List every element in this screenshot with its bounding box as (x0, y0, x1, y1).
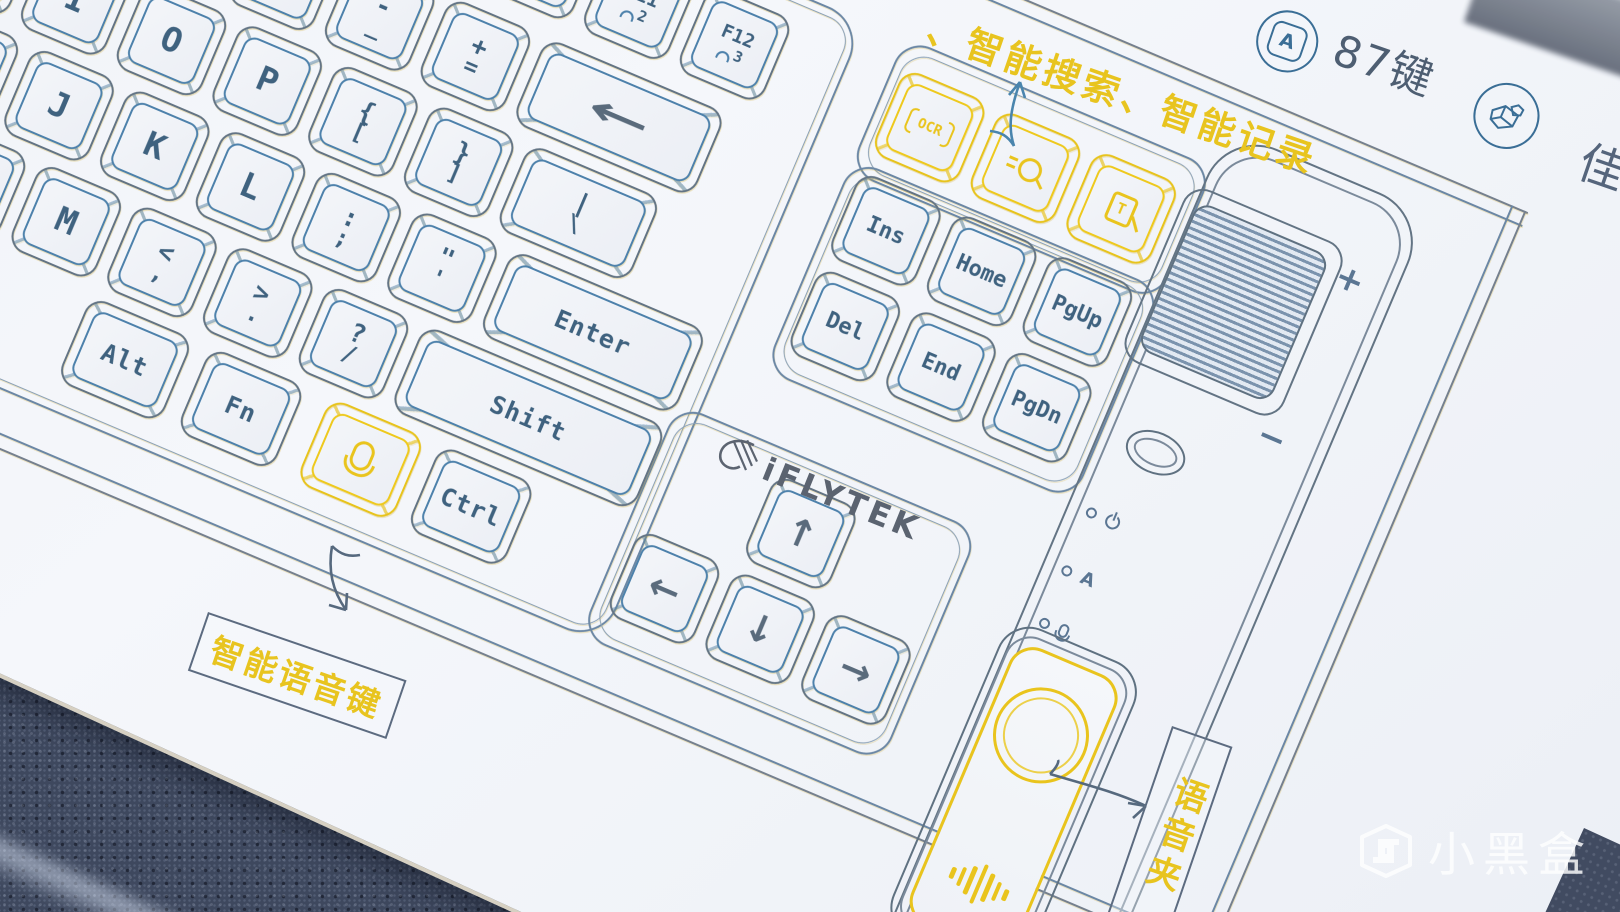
up-arrow-annotation-icon (988, 50, 1048, 150)
watermark-text: 小黑盒 (1428, 816, 1593, 885)
watermark: 小黑盒 (1358, 816, 1593, 885)
heybox-logo-icon (1358, 823, 1414, 879)
led-dot (1084, 506, 1098, 520)
note-icon: T (1103, 189, 1140, 228)
badge-a-letter: A (1264, 19, 1310, 65)
ocr-icon: OCR (903, 106, 957, 148)
mic-icon (346, 438, 378, 474)
keycap-icon (1483, 94, 1530, 139)
led-dot (1060, 564, 1074, 578)
photo-stage: 1F112F123-_+=←UIOP{[}]|\HJKL:;"'EnterNM<… (0, 0, 1620, 912)
search-icon (1014, 154, 1045, 185)
down-arrow-annotation-icon (300, 540, 390, 626)
